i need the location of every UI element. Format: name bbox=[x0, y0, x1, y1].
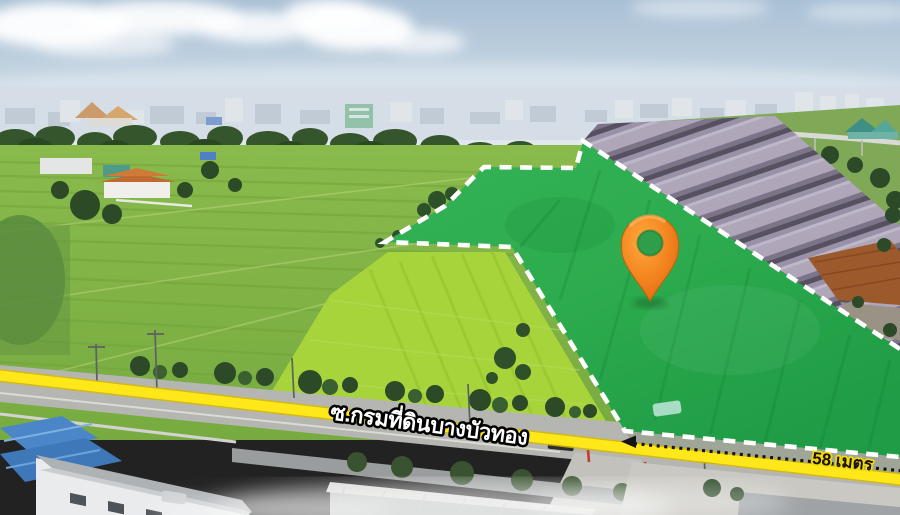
aerial-photo: 58 เมตร ซ.กรมที่ดินบางบัวทอง bbox=[0, 0, 900, 515]
aerial-photo-listing: 58 เมตร ซ.กรมที่ดินบางบัวทอง bbox=[0, 0, 900, 515]
fog bbox=[150, 482, 790, 515]
